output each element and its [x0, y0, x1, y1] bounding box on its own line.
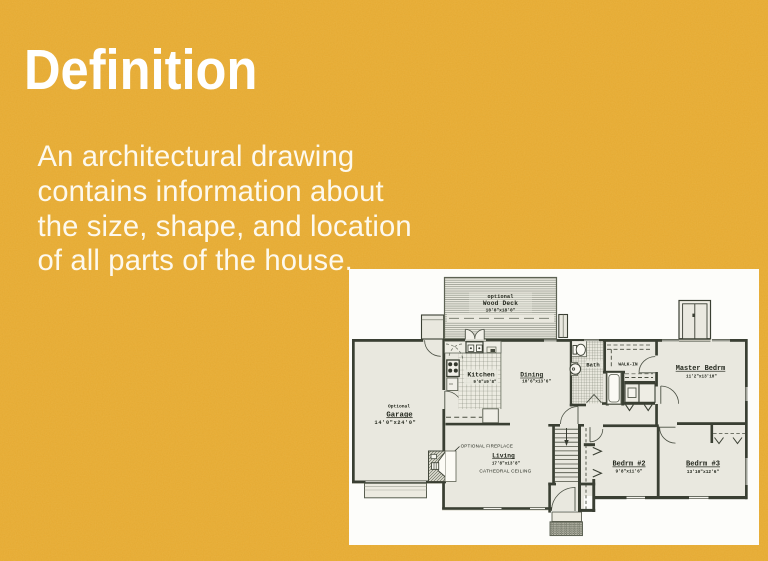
svg-text:Optional: Optional: [388, 404, 410, 410]
svg-text:9'8"x11'6": 9'8"x11'6": [615, 469, 642, 475]
svg-text:10'0"x18'0": 10'0"x18'0": [486, 308, 516, 314]
svg-text:17'8"x13'8": 17'8"x13'8": [492, 461, 521, 466]
svg-text:OPTIONAL FIREPLACE: OPTIONAL FIREPLACE: [461, 444, 513, 449]
svg-text:CATHEDRAL CEILING: CATHEDRAL CEILING: [479, 468, 531, 473]
svg-text:WALK-IN: WALK-IN: [618, 362, 638, 368]
svg-text:optional: optional: [487, 294, 513, 300]
svg-text:Bedrm #3: Bedrm #3: [686, 461, 720, 469]
svg-text:Dining: Dining: [520, 372, 543, 379]
svg-text:10'6"x13'6": 10'6"x13'6": [522, 380, 551, 385]
svg-text:Living: Living: [492, 452, 515, 459]
svg-text:9'0"x9'8": 9'0"x9'8": [473, 380, 497, 385]
svg-text:11'2"x13'10": 11'2"x13'10": [686, 374, 717, 379]
svg-text:Wood Deck: Wood Deck: [483, 300, 518, 307]
svg-text:Garage: Garage: [386, 411, 413, 419]
svg-text:14'0"x24'0": 14'0"x24'0": [375, 420, 417, 426]
svg-text:Bath: Bath: [586, 362, 600, 369]
svg-text:Bedrm #2: Bedrm #2: [612, 461, 645, 469]
svg-text:Master Bedrm: Master Bedrm: [676, 365, 726, 373]
svg-text:Kitchen: Kitchen: [467, 372, 494, 379]
svg-text:13'10"x12'6": 13'10"x12'6": [687, 469, 720, 475]
